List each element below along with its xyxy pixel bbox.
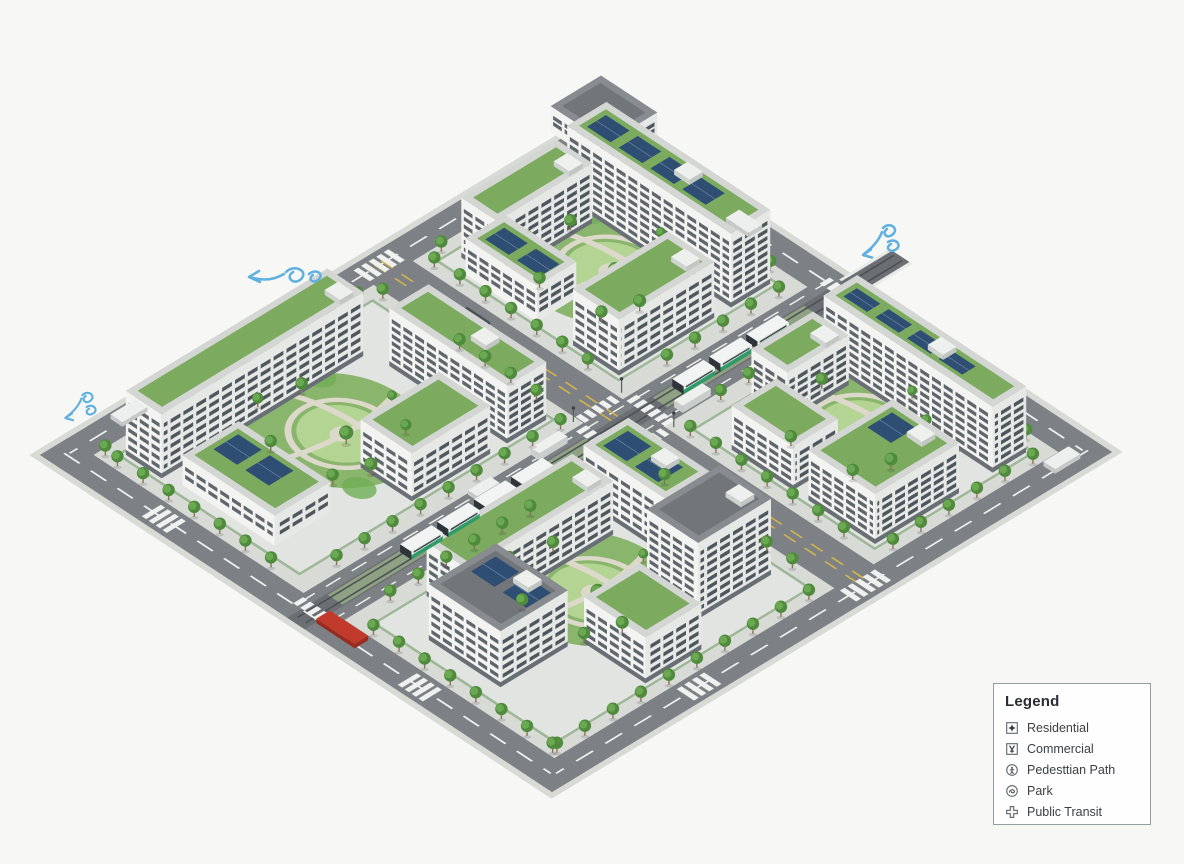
legend-label: Pedesttian Path — [1027, 763, 1115, 777]
commercial-icon — [1005, 742, 1019, 756]
legend-item-park: Park — [1005, 780, 1140, 801]
stage: Legend Residential Commercial Pedesttian… — [0, 0, 1184, 864]
wind-direction-icon — [65, 393, 95, 420]
legend-item-commercial: Commercial — [1005, 738, 1140, 759]
residential-icon — [1005, 721, 1019, 735]
legend-label: Residential — [1027, 721, 1089, 735]
legend-label: Park — [1027, 784, 1053, 798]
pedestrian-path-icon — [1005, 763, 1019, 777]
legend-item-public-transit: Public Transit — [1005, 801, 1140, 822]
legend-label: Commercial — [1027, 742, 1094, 756]
wind-direction-icon — [249, 268, 321, 282]
wind-direction-icon — [863, 225, 899, 257]
legend-item-pedestrian-path: Pedesttian Path — [1005, 759, 1140, 780]
legend-panel: Legend Residential Commercial Pedesttian… — [993, 683, 1151, 825]
public-transit-icon — [1005, 805, 1019, 819]
legend-item-residential: Residential — [1005, 717, 1140, 738]
urban-district-map-image: { "legend": { "title": "Legend", "items"… — [0, 0, 1184, 864]
legend-label: Public Transit — [1027, 805, 1102, 819]
legend-title: Legend — [1005, 693, 1140, 710]
park-icon — [1005, 784, 1019, 798]
